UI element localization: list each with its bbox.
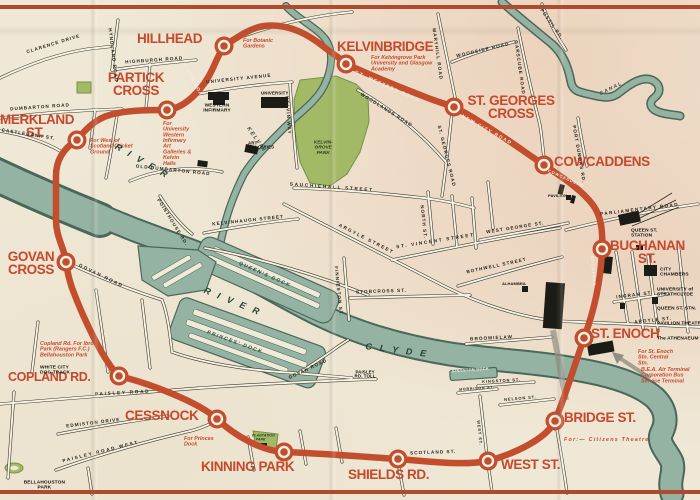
park-label-bellahouston: BELLAHOUSTON PARK: [18, 480, 71, 490]
road-label-university-avenue: UNIVERSITY AVENUE: [206, 73, 272, 85]
road-label-st-vincent: ST. VINCENT STREET: [396, 233, 475, 250]
note-st-enoch-bea: B.E.A. Air Terminal Corporation Bus Serv…: [641, 367, 695, 384]
station-label-cessnock[interactable]: CESSNOCK: [125, 410, 198, 423]
landmark-label-athenaeum: The ATHENAEUM: [657, 336, 699, 341]
water-label-queens-dock: QUEEN'S DOCK: [238, 261, 292, 289]
road-label-sauchiehall: SAUCHIEHALL STREET: [290, 182, 374, 193]
road-label-kingston-st: KINGSTON ST.: [482, 378, 521, 384]
road-label-ingram: INGRAM ST.: [616, 290, 654, 299]
station-label-bridge-st[interactable]: BRIDGE ST.: [564, 412, 636, 425]
landmark-label-university: UNIVERSITY: [261, 91, 289, 96]
road-label-woodside: WOODSIDE ROAD: [456, 42, 510, 59]
water-label-kingston-dock: KINGSTON DOCK: [452, 367, 489, 374]
water-label-canal: CANAL: [599, 81, 624, 97]
road-label-scotland-st: SCOTLAND ST.: [410, 449, 456, 455]
map-border-bottom: [0, 490, 700, 494]
road-label-edmiston: EDMISTON DRIVE: [66, 417, 121, 428]
station-label-cowcaddens[interactable]: COWCADDENS: [554, 156, 650, 169]
landmark-label-city-chambers: CITY CHAMBERS: [660, 267, 690, 277]
road-label-kelvinhaugh: KELVINHAUGH STREET: [212, 214, 284, 226]
note-hillhead: For Botanic Gardens: [243, 38, 277, 49]
road-label-govan-road-2: GOVAN ROAD: [288, 358, 328, 380]
road-label-bothwell: BOTHWELL STREET: [466, 257, 527, 274]
road-label-nelson: NELSON ST.: [504, 395, 537, 402]
station-label-buchanan-st[interactable]: BUCHANAN ST.: [610, 240, 684, 266]
station-label-kelvinbridge[interactable]: KELVINBRIDGE: [337, 41, 433, 54]
map-labels: HILLHEAD KELVINBRIDGE ST. GEORGES CROSS …: [0, 0, 700, 500]
road-label-paisley-west: PAISLEY ROAD WEST: [62, 440, 139, 464]
station-label-kinning-park[interactable]: KINNING PARK: [201, 461, 294, 474]
road-label-finnieston: FINNIESTON ST.: [333, 266, 343, 317]
subway-map: HILLHEAD KELVINBRIDGE ST. GEORGES CROSS …: [0, 0, 700, 500]
road-label-govan-road: GOVAN ROAD: [78, 263, 124, 289]
landmark-label-queen-st-stn: QUEEN ST. STN.: [657, 306, 696, 311]
road-label-parliamentary: PARLIAMENTARY ROAD: [600, 202, 679, 216]
road-label-stobcross: STOBCROSS ST.: [356, 288, 407, 295]
road-label-byres: BYRES ROAD: [182, 62, 206, 101]
park-label-plantation: PLANTATION PARK: [252, 434, 269, 441]
road-label-st-georges-road: ST. GEORGES ROAD: [436, 125, 456, 187]
landmark-label-strathclyde: UNIVERSITY of STRATHCLYDE: [657, 287, 700, 297]
note-bridge-st: For:— Citizens Theatre: [564, 437, 650, 443]
road-label-garscube: GARSCUBE ROAD: [513, 40, 525, 95]
station-label-hillhead[interactable]: HILLHEAD: [137, 33, 202, 46]
road-label-morrison: MORRISON ST.: [459, 386, 495, 392]
park-label-kelvingrove: KELVIN- GROVE PARK: [310, 140, 336, 155]
landmark-label-queen-st-station: QUEEN ST. STATION: [631, 228, 661, 238]
water-label-river-docks: RIVER: [202, 286, 267, 320]
landmark-label-pavilion: PAVILION: [548, 194, 567, 198]
station-label-st-georges-cross[interactable]: ST. GEORGES CROSS: [464, 95, 558, 121]
note-copland: Copland Rd. For Ibrox Park (Rangers F.C.…: [40, 341, 102, 358]
road-label-clarence: CLARENCE DRIVE: [26, 34, 81, 55]
station-label-shields-rd[interactable]: SHIELDS RD.: [348, 469, 429, 482]
landmark-label-alhambra: ALHAMBRA: [502, 282, 526, 286]
station-label-west-st[interactable]: WEST ST.: [501, 459, 560, 472]
map-border-top: [0, 5, 700, 9]
note-partick: For University Western Infirmary Art Gal…: [163, 121, 193, 166]
road-label-west-george: WEST GEORGE ST.: [486, 221, 545, 235]
landmark-label-art-galleries: ART GALLERIES: [248, 141, 269, 150]
water-label-princes-dock: PRINCES' DOCK: [206, 330, 263, 355]
road-label-north-st: NORTH ST.: [419, 205, 427, 239]
road-label-dumbarton: DUMBARTON ROAD: [10, 103, 70, 112]
road-label-argyle-street: ARGYLE STREET: [338, 223, 395, 255]
road-label-broomielaw: BROOMIELAW: [470, 335, 513, 342]
note-st-enoch: For St. Enoch Stn. Central Stn.: [638, 349, 674, 366]
note-copland-white-city: WHITE CITY DOG TRACK: [40, 365, 74, 375]
note-cessnock: For Princes Dock: [184, 436, 214, 447]
landmark-label-paisley-toll: PAISLEY RD. TOLL: [353, 370, 377, 379]
station-label-govan-cross[interactable]: GOVAN CROSS: [0, 251, 62, 277]
landmark-label-pavilion-theatre: PAVILION THEATRE: [657, 321, 700, 326]
note-kelvinbridge: For Kelvingrove Park University and Glas…: [371, 55, 435, 72]
road-label-buchanan-street: BUCHANAN: [590, 256, 596, 287]
station-label-st-enoch[interactable]: ST. ENOCH: [591, 328, 659, 341]
road-label-kelvin-way: KELVIN WAY: [284, 96, 291, 135]
landmark-label-western-infirmary: WESTERN INFIRMARY: [202, 103, 232, 113]
road-label-west-st-road: WEST ST.: [476, 420, 483, 446]
road-label-pointhouse: POINTHOUSE RD.: [156, 198, 189, 247]
road-label-possil: POSSIL RD.: [539, 8, 564, 41]
road-label-highburgh: HIGHBURGH ROAD: [125, 56, 183, 65]
water-label-clyde: CLYDE: [365, 342, 434, 360]
road-label-paisley-road: PAISLEY ROAD: [95, 389, 150, 397]
